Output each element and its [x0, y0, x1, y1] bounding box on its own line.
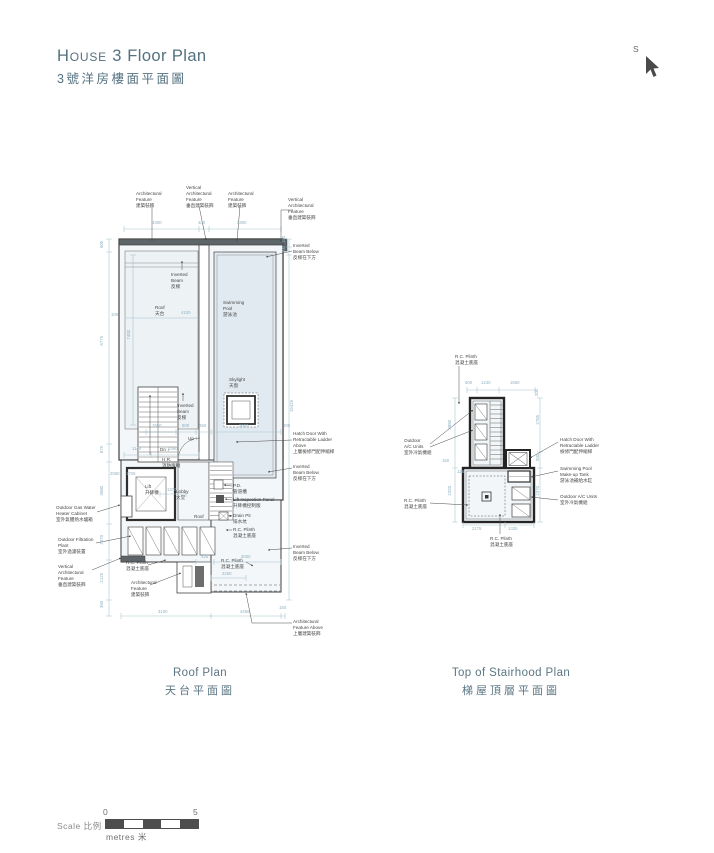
dim: 2785 [536, 415, 540, 425]
dim: 3000 [241, 555, 251, 559]
dim: 4250 [240, 610, 250, 614]
room-label-roof-small: Roof [194, 514, 204, 520]
dim: 6775 [100, 336, 104, 346]
annotation-hatch-door: Hatch Door With Retractable Ladder 檢修門配伸… [560, 437, 599, 455]
dim: 2125 [100, 573, 104, 583]
dim: 425 [201, 555, 208, 559]
annotation-lift-inspection-panel: Lift Inspection Panel 升降機控制版 [233, 497, 274, 509]
caption-stairhood-plan: Top of Stairhood Plan 梯屋頂層平面圖 [421, 667, 601, 698]
annotation-pipe-duct: P.D. 管道槽 [233, 483, 247, 495]
annotation-hatch-door: Hatch Door With Retractable Ladder Above… [293, 431, 334, 455]
annotation-hose-reel: H.R. 消防喉轆 [162, 457, 180, 469]
annotation-architectural-feature: Architectural Feature 建築裝飾 [228, 191, 254, 209]
annotation-outdoor-ac-units: Outdoor A/C Units 室外冷氣機組 [560, 494, 597, 506]
plan-drawing [0, 0, 714, 853]
scale-segment [124, 820, 142, 828]
caption-stairhood-plan-en: Top of Stairhood Plan [421, 667, 601, 679]
dim: 875 [100, 446, 104, 453]
annotation-rc-plinth: R.C. Plinth 混凝土底座 [221, 558, 244, 570]
annotation-architectural-feature: Architectural Feature 建築裝飾 [131, 580, 157, 598]
dim: 1140 [132, 447, 141, 451]
scale-segment [143, 820, 161, 828]
caption-roof-plan-en: Roof Plan [120, 667, 280, 679]
stair-up-label: Up ↑ [188, 436, 197, 442]
dim: 400 [198, 221, 205, 225]
floor-plan-page: House 3 Floor Plan 3號洋房樓面平面圖 S [0, 0, 714, 853]
dim: 2175 [472, 527, 482, 531]
annotation-skylight: Skylight 天窗 [229, 377, 245, 389]
hatch-and-tank [506, 450, 530, 482]
room-label-swimming-pool: Swimming Pool 游泳池 [223, 300, 244, 318]
dim: 1550 [152, 424, 162, 428]
dim: 500 [536, 454, 540, 461]
annotation-inverted-beam: Inverted Beam 反樑 [177, 403, 194, 421]
dim: 3880 [448, 420, 452, 430]
dim: 800 [182, 424, 189, 428]
skylight [224, 393, 258, 427]
scale-segment [180, 820, 198, 828]
dim: 4300 [152, 221, 162, 225]
annotation-filtration-plant: Outdoor Filtration Plant 室外過濾裝置 [58, 537, 94, 555]
annotation-vertical-architectural-feature: Vertical Architectural Feature 垂直建築裝飾 [58, 564, 86, 588]
annotation-inverted-beam-below: Inverted Beam Below 反樑在下方 [293, 243, 319, 261]
dim: 300 [282, 246, 286, 253]
dim: 1560 [510, 381, 520, 385]
scale-start-value: 0 [103, 807, 108, 817]
annotation-inverted-beam: Inverted Beam 反樑 [171, 272, 188, 290]
caption-roof-plan-zh: 天台平面圖 [120, 682, 280, 698]
annotation-vertical-architectural-feature: Vertical Architectural Feature 垂直建築裝飾 [186, 185, 214, 209]
annotation-architectural-feature-above: Architectural Feature Above 上層建築裝飾 [293, 619, 323, 637]
dim: 150 [282, 236, 286, 243]
annotation-makeup-tank: Swimming Pool Make-up Tank 游泳池補給水缸 [560, 466, 592, 484]
dim: 2370 [536, 486, 540, 496]
scale-end-value: 5 [193, 807, 198, 817]
annotation-drain-pit: Drain Pit 排水坑 [233, 513, 251, 525]
dim: 200 [535, 389, 539, 396]
room-label-roof: Roof 天台 [155, 305, 165, 317]
scale-segment [106, 820, 124, 828]
scale-segment [161, 820, 179, 828]
annotation-gas-water-heater: Outdoor Gas Water Heater Cabinet 室外氣體熱水爐… [56, 505, 96, 523]
caption-stairhood-plan-zh: 梯屋頂層平面圖 [421, 682, 601, 698]
annotation-inverted-beam-below: Inverted Beam Below 反樑在下方 [293, 544, 319, 562]
dim: 7400 [127, 330, 131, 340]
dim: 1370 [167, 488, 177, 492]
annotation-architectural-feature: Architectural Feature 建築裝飾 [136, 191, 162, 209]
annotation-inverted-beam-below: Inverted Beam Below 反樑在下方 [293, 464, 319, 482]
dim: 350 [100, 601, 104, 608]
swimming-pool [214, 252, 276, 478]
annotation-rc-plinth: R.C. Plinth 混凝土底座 [126, 560, 149, 572]
dim: 200 [283, 424, 290, 428]
dim: 2250 [222, 572, 232, 576]
scale-label: Scale 比例 [57, 820, 102, 832]
scale-bar: Scale 比例 0 5 metres 米 [57, 804, 237, 844]
annotation-rc-plinth: R.C. Plinth 混凝土底座 [233, 527, 256, 539]
dim: 3680 [100, 486, 104, 496]
annotation-rc-plinth: R.C. Plinth 混凝土底座 [404, 498, 427, 510]
annotation-rc-plinth: R.C. Plinth 混凝土底座 [490, 536, 513, 548]
dim: 2320 [448, 486, 452, 496]
dim: 1240 [481, 381, 491, 385]
dim: 4100 [181, 311, 191, 315]
dim: 600 [465, 381, 472, 385]
dim: 19425 [290, 400, 294, 412]
dim: 2600 [239, 424, 249, 428]
dim: 650 [199, 424, 206, 428]
dim: 1325 [508, 527, 518, 531]
dim: 600 [100, 241, 104, 248]
dim: 1725 [126, 472, 136, 476]
room-label-lobby: Lobby 大堂 [176, 489, 189, 501]
dim: 150 [442, 459, 449, 463]
dim: 2360 [168, 447, 178, 451]
annotation-outdoor-ac-units: Outdoor A/C Units 室外冷氣機組 [404, 438, 432, 456]
annotation-rc-plinth: R.C. Plinth 混凝土底座 [455, 354, 478, 366]
annotation-vertical-architectural-feature: Vertical Architectural Feature 垂直建築裝飾 [288, 197, 316, 221]
dim: 2800 [237, 221, 247, 225]
scale-unit-label: metres 米 [106, 831, 147, 843]
dim: 3100 [158, 610, 168, 614]
room-label-lift: Lift 升降機 [145, 484, 159, 496]
dim: 150 [279, 606, 286, 610]
dim: 2050 [110, 472, 120, 476]
caption-roof-plan: Roof Plan 天台平面圖 [120, 667, 280, 698]
dim: 100 [111, 313, 118, 317]
scale-bar-graphic [105, 819, 199, 829]
dim: 2370 [100, 535, 104, 545]
dim: 125 [457, 470, 464, 474]
